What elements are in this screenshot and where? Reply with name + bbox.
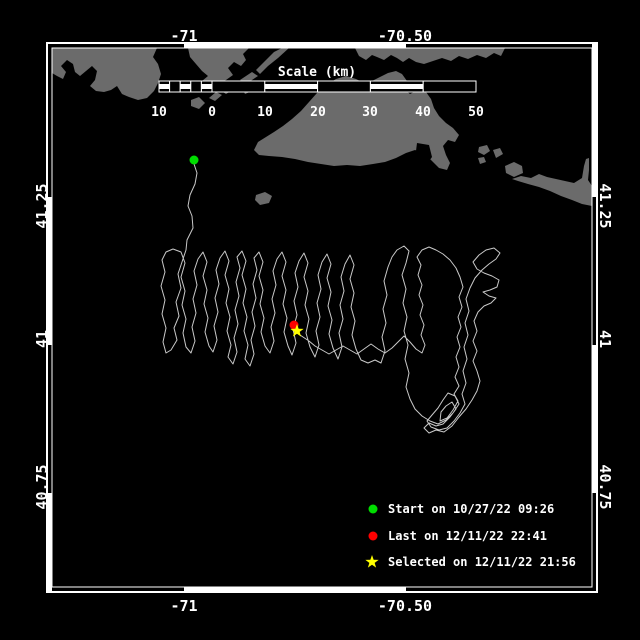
scale-bar-tick-label: 20: [310, 105, 326, 120]
scale-bar-box-fill-8: [370, 84, 423, 89]
legend-marker-0: [369, 505, 378, 514]
axis-label-top: -71: [170, 27, 197, 45]
scale-bar-box-3: [191, 81, 202, 92]
track-map-screen: Scale (km)1001020304050-71-70.50-71-70.5…: [0, 0, 640, 640]
legend-label-0: Start on 10/27/22 09:26: [388, 502, 554, 516]
scale-bar-box-fill-0: [159, 84, 170, 89]
scale-bar-box-fill-2: [180, 84, 191, 89]
scale-bar-tick-label: 30: [362, 105, 378, 120]
legend-label-2: Selected on 12/11/22 21:56: [388, 555, 576, 569]
axis-label-bottom: -71: [170, 597, 197, 615]
axis-label-left: 41.25: [33, 183, 51, 228]
legend-label-1: Last on 12/11/22 22:41: [388, 529, 547, 543]
axis-label-left: 40.75: [33, 464, 51, 509]
axis-label-right: 40.75: [596, 464, 614, 509]
scale-bar-tick-label: 10: [151, 105, 167, 120]
scale-bar-box-7: [318, 81, 371, 92]
legend-marker-1: [369, 532, 378, 541]
frame-zebra-segment-bottom: [184, 587, 406, 592]
scale-bar-box-1: [170, 81, 181, 92]
axis-label-right: 41: [596, 330, 614, 348]
track-map-plot: Scale (km)1001020304050-71-70.50-71-70.5…: [0, 0, 640, 640]
frame-zebra-segment-right: [592, 43, 597, 197]
axis-label-top: -70.50: [378, 27, 432, 45]
frame-zebra-segment-top: [184, 43, 406, 48]
scale-bar-box-fill-4: [201, 84, 212, 89]
scale-bar-title: Scale (km): [278, 65, 356, 80]
axis-label-bottom: -70.50: [378, 597, 432, 615]
scale-bar-box-9: [423, 81, 476, 92]
scale-bar-box-fill-6: [265, 84, 318, 89]
scale-bar-tick-label: 40: [415, 105, 431, 120]
axis-label-right: 41.25: [596, 183, 614, 228]
legend: Start on 10/27/22 09:26Last on 12/11/22 …: [365, 502, 576, 569]
scale-bar-tick-label: 50: [468, 105, 484, 120]
scale-bar-box-5: [212, 81, 265, 92]
axis-label-left: 41: [33, 330, 51, 348]
scale-bar-tick-label: 0: [208, 105, 216, 120]
start-position-marker: [190, 156, 199, 165]
scale-bar-tick-label: 10: [257, 105, 273, 120]
